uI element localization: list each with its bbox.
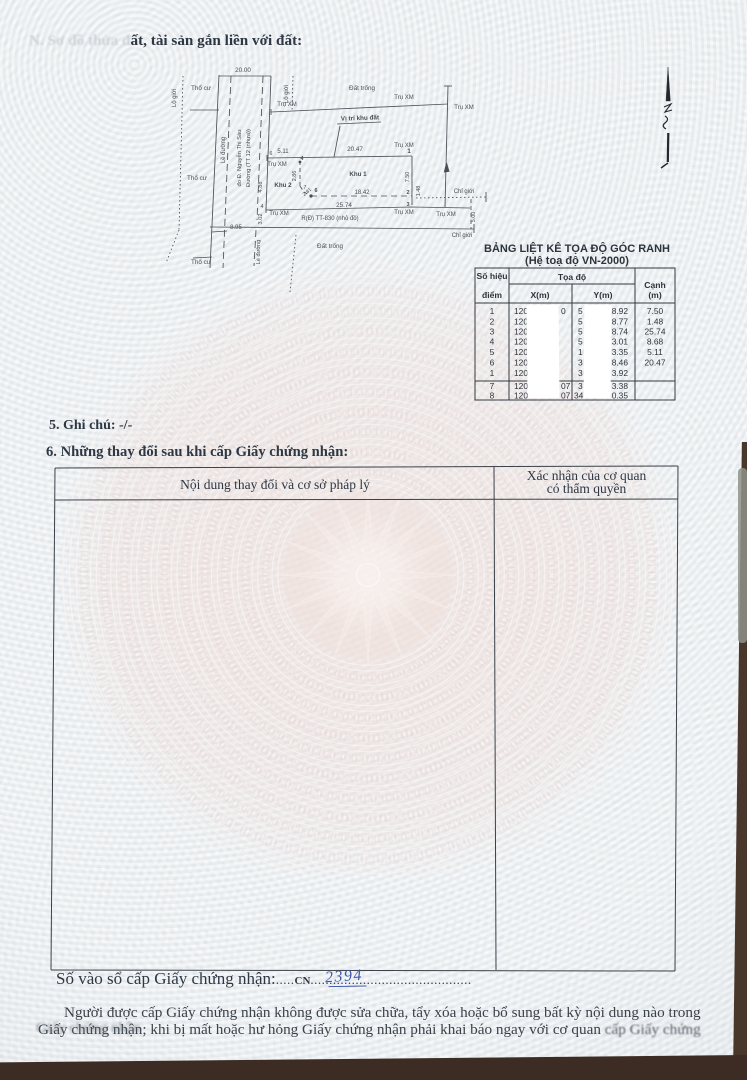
- svg-text:Đất trống: Đất trống: [317, 241, 343, 250]
- svg-text:Trụ XM: Trụ XM: [267, 162, 286, 168]
- svg-text:Trụ XM: Trụ XM: [277, 102, 296, 108]
- svg-text:6: 6: [314, 188, 317, 194]
- svg-text:7.50: 7.50: [405, 172, 411, 183]
- svg-text:Lề đường: Lề đường: [256, 240, 262, 265]
- svg-text:1: 1: [490, 368, 495, 378]
- svg-text:4: 4: [260, 204, 263, 210]
- svg-text:5: 5: [490, 347, 495, 357]
- svg-text:5.11: 5.11: [277, 149, 289, 155]
- svg-text:R(Đ) TT-830 (nhỏ đồ): R(Đ) TT-830 (nhỏ đồ): [301, 215, 358, 222]
- svg-text:8.46: 8.46: [612, 358, 629, 368]
- svg-text:Lộ giới: Lộ giới: [284, 85, 290, 103]
- svg-text:Trụ XM: Trụ XM: [269, 211, 288, 217]
- svg-text:5.00: 5.00: [471, 212, 477, 223]
- svg-text:3: 3: [578, 368, 583, 378]
- svg-text:120: 120: [514, 337, 528, 347]
- svg-text:(m): (m): [648, 290, 662, 300]
- svg-text:Lề đường: Lề đường: [221, 137, 227, 163]
- svg-text:120: 120: [514, 381, 528, 391]
- svg-text:120: 120: [514, 317, 528, 327]
- svg-text:6: 6: [490, 358, 495, 368]
- svg-text:5: 5: [578, 306, 583, 316]
- svg-text:Cạnh: Cạnh: [644, 280, 665, 290]
- svg-text:20.47: 20.47: [645, 358, 666, 368]
- svg-text:Trụ XM: Trụ XM: [394, 143, 413, 149]
- svg-text:120: 120: [514, 327, 528, 337]
- svg-text:07: 07: [561, 391, 571, 401]
- svg-text:3.92: 3.92: [612, 368, 629, 378]
- svg-text:Trụ XM: Trụ XM: [394, 95, 413, 101]
- svg-text:34: 34: [574, 391, 584, 401]
- svg-text:6: 6: [270, 151, 273, 157]
- svg-text:3.35: 3.35: [612, 347, 629, 357]
- svg-text:4.88: 4.88: [258, 182, 264, 193]
- svg-text:8.74: 8.74: [612, 327, 629, 337]
- svg-text:3.02: 3.02: [258, 214, 264, 225]
- svg-text:Vị trí khu đất: Vị trí khu đất: [341, 113, 380, 122]
- svg-text:120: 120: [514, 358, 528, 368]
- svg-text:8.68: 8.68: [647, 337, 664, 347]
- svg-text:3.38: 3.38: [612, 381, 629, 391]
- svg-text:1: 1: [407, 149, 411, 155]
- svg-text:Lộ giới: Lộ giới: [172, 89, 178, 107]
- svg-text:Chỉ giới: Chỉ giới: [452, 232, 473, 239]
- svg-text:(Hệ toạ độ VN-2000): (Hệ toạ độ VN-2000): [525, 255, 629, 267]
- svg-text:8.95: 8.95: [230, 225, 242, 231]
- svg-text:120: 120: [514, 347, 528, 357]
- svg-text:3: 3: [490, 327, 495, 337]
- svg-text:Y(m): Y(m): [593, 290, 612, 300]
- svg-text:đo Đ. Nguyễn Thị Sáu: đo Đ. Nguyễn Thị Sáu: [236, 130, 243, 187]
- svg-text:8.92: 8.92: [612, 306, 629, 316]
- svg-text:7.50: 7.50: [647, 306, 664, 316]
- svg-text:5.11: 5.11: [647, 347, 663, 357]
- svg-text:1: 1: [490, 306, 495, 316]
- svg-text:25.74: 25.74: [336, 202, 352, 209]
- svg-text:120: 120: [514, 306, 528, 316]
- svg-text:5: 5: [578, 337, 583, 347]
- svg-text:2: 2: [490, 317, 495, 327]
- svg-text:20.00: 20.00: [235, 67, 251, 74]
- svg-text:Số hiệu: Số hiệu: [476, 271, 507, 281]
- svg-text:25.74: 25.74: [645, 327, 666, 337]
- svg-text:Tọa độ: Tọa độ: [558, 272, 586, 282]
- svg-text:Thổ cư: Thổ cư: [187, 174, 208, 182]
- svg-text:2.86: 2.86: [292, 171, 298, 182]
- svg-text:7: 7: [490, 381, 495, 391]
- svg-text:BẢNG LIỆT KÊ TỌA ĐỘ GÓC RANH: BẢNG LIỆT KÊ TỌA ĐỘ GÓC RANH: [484, 242, 670, 255]
- svg-text:2: 2: [406, 190, 409, 196]
- svg-text:X(m): X(m): [530, 290, 549, 300]
- svg-text:5: 5: [578, 327, 583, 337]
- svg-text:5: 5: [578, 317, 583, 327]
- svg-text:Trụ XM: Trụ XM: [394, 210, 413, 216]
- svg-text:3.01: 3.01: [612, 337, 629, 347]
- svg-text:3: 3: [578, 381, 583, 391]
- svg-text:Thổ cư: Thổ cư: [191, 258, 212, 266]
- svg-text:8.77: 8.77: [612, 317, 629, 327]
- svg-text:1.48: 1.48: [647, 317, 664, 327]
- svg-text:07: 07: [561, 381, 571, 391]
- svg-text:Đường (TT 12 (nhựa)): Đường (TT 12 (nhựa)): [246, 129, 252, 187]
- svg-text:8: 8: [490, 391, 495, 401]
- svg-text:Chỉ giới: Chỉ giới: [454, 188, 475, 195]
- svg-text:1: 1: [578, 347, 583, 357]
- svg-text:Khu 1: Khu 1: [349, 171, 367, 178]
- svg-text:điểm: điểm: [482, 290, 502, 300]
- svg-text:Thổ cư: Thổ cư: [191, 84, 212, 92]
- svg-text:Trụ XM: Trụ XM: [436, 212, 455, 218]
- svg-text:Khu 2: Khu 2: [274, 182, 292, 189]
- svg-text:18.42: 18.42: [354, 190, 370, 196]
- svg-text:20.47: 20.47: [347, 146, 363, 153]
- svg-text:1.48: 1.48: [416, 186, 422, 197]
- svg-text:0: 0: [561, 306, 566, 316]
- svg-text:4: 4: [490, 337, 495, 347]
- svg-text:4: 4: [301, 156, 304, 162]
- svg-text:120: 120: [514, 368, 528, 378]
- svg-text:0.35: 0.35: [612, 391, 629, 401]
- svg-text:3: 3: [578, 358, 583, 368]
- svg-text:Trụ XM: Trụ XM: [454, 105, 473, 111]
- svg-text:Đất trống: Đất trống: [349, 83, 375, 92]
